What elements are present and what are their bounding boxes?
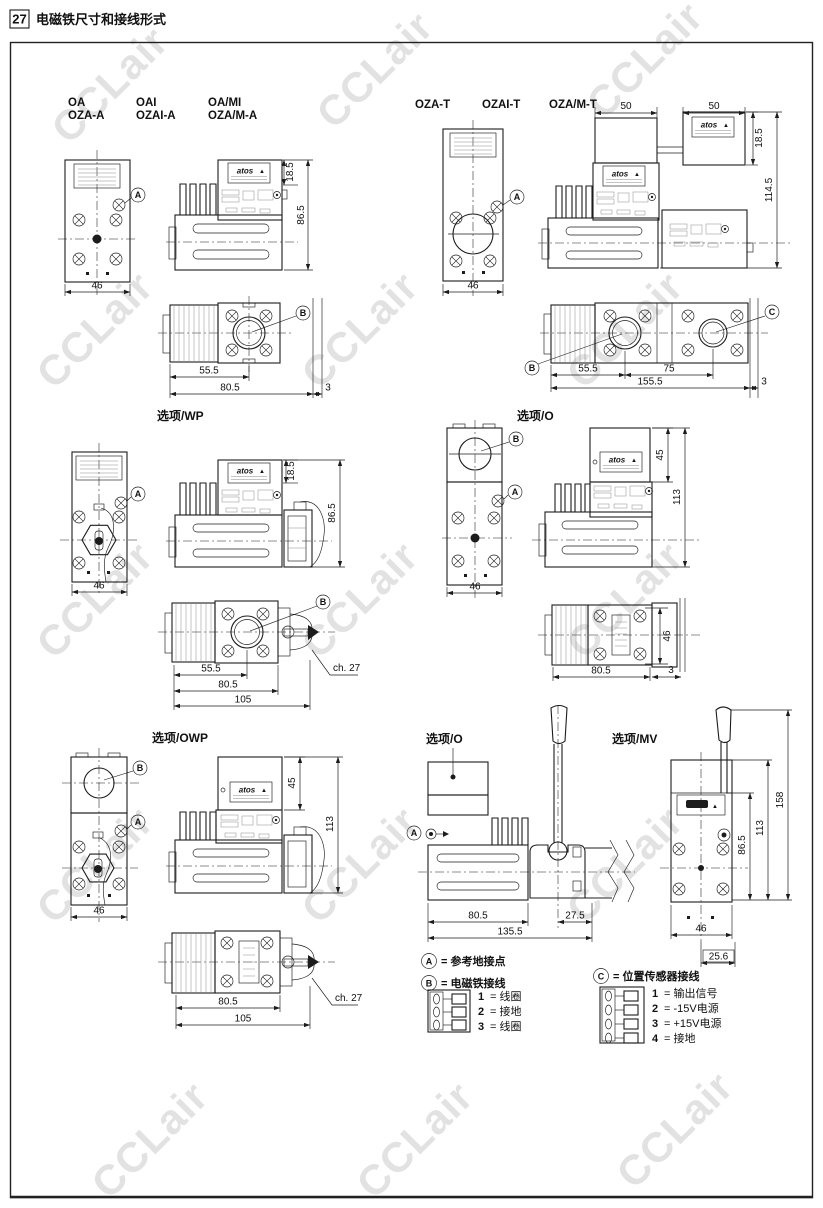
pin-number: 1 bbox=[478, 991, 484, 1003]
marker-a: A bbox=[503, 190, 524, 205]
dim-50: 50 bbox=[708, 101, 720, 112]
ozat-side-view: 50 50 18.5 114.5 bbox=[538, 101, 792, 268]
wp-side-view: 18.5 86.5 bbox=[166, 460, 345, 567]
marker-a: A bbox=[127, 815, 145, 829]
svg-text:A: A bbox=[426, 957, 433, 967]
group-ozat-model-labels: OZA-T OZAI-T OZA/M-T bbox=[415, 99, 597, 111]
legend-marker-c: C bbox=[594, 969, 609, 984]
dim-25.6: 25.6 bbox=[709, 952, 729, 963]
marker-a: A bbox=[125, 188, 145, 203]
hex-label: ch. 27 bbox=[333, 663, 361, 674]
pin-label: = 线圈 bbox=[490, 1019, 521, 1033]
svg-text:A: A bbox=[135, 190, 142, 200]
dim-155.5: 155.5 bbox=[637, 377, 662, 388]
svg-text:A: A bbox=[135, 817, 142, 827]
mv-view: 选项/MV ▲ 158 113 86.5 46 25.6 bbox=[612, 707, 792, 967]
dim-86.5: 86.5 bbox=[296, 205, 307, 225]
page-title: 电磁铁尺寸和接线形式 bbox=[36, 12, 166, 27]
dim-135.5: 135.5 bbox=[497, 927, 522, 938]
dim-55.5: 55.5 bbox=[201, 664, 221, 675]
marker-b: B bbox=[104, 761, 147, 780]
dim-113: 113 bbox=[672, 489, 683, 505]
model-ozai-t: OZAI-T bbox=[482, 99, 520, 111]
svg-text:C: C bbox=[598, 972, 605, 982]
o-bottom-view: 46 80.5 3 bbox=[538, 598, 700, 681]
o-front-view: B A 46 bbox=[442, 420, 523, 598]
pin-number: 4 bbox=[652, 1033, 659, 1045]
pin-label: = 接地 bbox=[490, 1005, 521, 1018]
dim-50: 50 bbox=[620, 101, 632, 112]
model-oza-m-t: OZA/M-T bbox=[549, 99, 597, 111]
svg-text:A: A bbox=[514, 192, 521, 202]
dim-45: 45 bbox=[287, 777, 298, 789]
ozat-front-view: A 46 bbox=[443, 120, 524, 296]
svg-text:B: B bbox=[300, 308, 307, 318]
svg-text:B: B bbox=[513, 434, 520, 444]
pin-number: 3 bbox=[652, 1018, 658, 1030]
page-header: 27 电磁铁尺寸和接线形式 bbox=[10, 10, 166, 28]
dim-46: 46 bbox=[469, 582, 481, 593]
option-o-label: 选项/O bbox=[517, 408, 554, 423]
dim-45: 45 bbox=[655, 449, 666, 461]
pin-label: = 接地 bbox=[664, 1032, 695, 1045]
group-oa-model-labels: OA OZA-A OAI OZAI-A OA/MI OZA/M-A bbox=[68, 97, 257, 122]
svg-text:A: A bbox=[135, 489, 142, 499]
dim-80.5: 80.5 bbox=[218, 680, 238, 691]
owp-side-view: 45 113 bbox=[166, 757, 343, 893]
wp-bottom-view: B ch. 27 55.5 80.5 105 bbox=[158, 595, 361, 710]
dim-46: 46 bbox=[93, 906, 105, 917]
marker-a: A bbox=[127, 487, 145, 501]
pin-label: = +15V电源 bbox=[664, 1016, 721, 1030]
pin-number: 3 bbox=[478, 1021, 484, 1033]
oa-side-view: 18.5 86.5 bbox=[166, 160, 313, 270]
model-oza-t: OZA-T bbox=[415, 99, 450, 111]
wp-front-view: A 46 bbox=[60, 443, 145, 596]
svg-text:A: A bbox=[512, 487, 519, 497]
option-o-lever-label: 选项/O bbox=[426, 731, 463, 746]
dim-158: 158 bbox=[775, 791, 786, 808]
dim-80.5: 80.5 bbox=[591, 666, 611, 677]
pin-number: 2 bbox=[652, 1003, 658, 1015]
dim-18.5: 18.5 bbox=[754, 128, 765, 148]
dim-86.5: 86.5 bbox=[327, 503, 338, 523]
dim-80.5: 80.5 bbox=[218, 997, 238, 1008]
dim-75: 75 bbox=[663, 364, 675, 375]
legend-b-text: = 电磁铁接线 bbox=[441, 976, 505, 990]
dim-46: 46 bbox=[91, 281, 103, 292]
owp-bottom-view: ch. 27 80.5 105 bbox=[158, 931, 363, 1029]
model-oai: OAI bbox=[136, 97, 156, 109]
dim-105: 105 bbox=[235, 1014, 252, 1025]
svg-text:B: B bbox=[529, 363, 536, 373]
model-oa: OA bbox=[68, 97, 85, 109]
dim-55.5: 55.5 bbox=[578, 364, 598, 375]
dim-113: 113 bbox=[755, 820, 766, 836]
pin-label: = 输出信号 bbox=[664, 986, 717, 1000]
legend: A = 参考地接点 B = 电磁铁接线 1 = 线圈 2 = 接地 3 = 线圈… bbox=[422, 954, 722, 1046]
dim-80.5: 80.5 bbox=[220, 383, 240, 394]
option-owp-label: 选项/OWP bbox=[152, 730, 208, 745]
dim-46: 46 bbox=[467, 281, 479, 292]
dim-114.5: 114.5 bbox=[764, 177, 775, 202]
svg-text:A: A bbox=[411, 828, 418, 838]
solenoid-connector-icon bbox=[428, 990, 470, 1032]
svg-text:B: B bbox=[320, 597, 327, 607]
dim-113: 113 bbox=[325, 816, 336, 832]
oa-bottom-view: B 55.5 80.5 3 bbox=[158, 296, 331, 398]
marker-b: B bbox=[525, 334, 622, 375]
dim-3: 3 bbox=[761, 377, 767, 388]
dim-3: 3 bbox=[325, 383, 331, 394]
dim-46: 46 bbox=[93, 581, 105, 592]
drawing-canvas: atos▲ 27 电磁铁尺寸和接线形式 OA OZA-A OAI OZAI-A … bbox=[0, 0, 823, 1208]
dim-46: 46 bbox=[662, 630, 673, 642]
model-oa-mi: OA/MI bbox=[208, 97, 241, 109]
svg-text:C: C bbox=[769, 307, 776, 317]
pin-label: = -15V电源 bbox=[664, 1001, 719, 1015]
warning-triangle-icon: ▲ bbox=[712, 804, 718, 810]
dim-3: 3 bbox=[668, 665, 674, 676]
dim-46: 46 bbox=[695, 924, 707, 935]
marker-a: A bbox=[407, 826, 421, 840]
svg-text:B: B bbox=[426, 979, 433, 989]
svg-text:B: B bbox=[137, 763, 144, 773]
hex-label: ch. 27 bbox=[335, 993, 363, 1004]
dim-105: 105 bbox=[235, 695, 252, 706]
dim-55.5: 55.5 bbox=[199, 366, 219, 377]
dim-27.5: 27.5 bbox=[565, 911, 585, 922]
legend-a-text: = 参考地接点 bbox=[441, 954, 505, 968]
model-oza-a: OZA-A bbox=[68, 110, 104, 122]
pin-number: 1 bbox=[652, 988, 658, 1000]
legend-c-text: = 位置传感器接线 bbox=[613, 969, 699, 983]
dim-18.5: 18.5 bbox=[285, 162, 296, 182]
model-oza-m-a: OZA/M-A bbox=[208, 110, 257, 122]
sensor-connector-icon bbox=[600, 987, 644, 1043]
option-wp-label: 选项/WP bbox=[157, 408, 204, 423]
pin-number: 2 bbox=[478, 1006, 484, 1018]
legend-marker-a: A bbox=[422, 954, 437, 969]
option-mv-label: 选项/MV bbox=[612, 731, 657, 746]
o-lever-view: 选项/O A 80.5 27.5 135.5 bbox=[407, 705, 635, 942]
oa-front-view: A 46 bbox=[58, 150, 145, 296]
model-ozai-a: OZAI-A bbox=[136, 110, 176, 122]
page-number: 27 bbox=[12, 12, 26, 27]
dim-80.5: 80.5 bbox=[468, 911, 488, 922]
dim-18.5: 18.5 bbox=[286, 461, 297, 481]
marker-a: A bbox=[504, 485, 522, 499]
dim-86.5: 86.5 bbox=[737, 835, 748, 855]
ozat-bottom-view: B C 55.5 75 155.5 3 bbox=[525, 298, 779, 398]
o-side-view: 45 113 bbox=[532, 428, 700, 567]
owp-front-view: B A 46 bbox=[62, 748, 147, 922]
pin-label: = 线圈 bbox=[490, 989, 521, 1003]
legend-marker-b: B bbox=[422, 976, 437, 991]
